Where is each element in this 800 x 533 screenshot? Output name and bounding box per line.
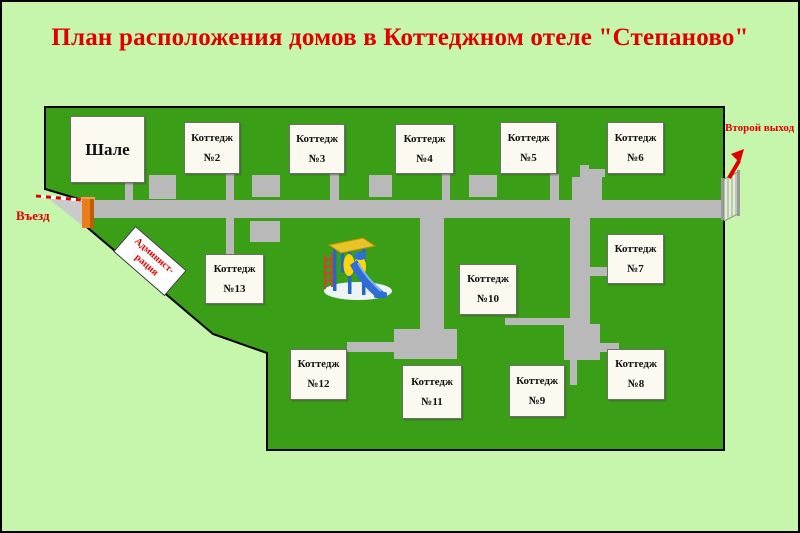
building-label: Коттедж bbox=[467, 274, 509, 285]
road-segment bbox=[347, 342, 394, 352]
building-label: Коттедж bbox=[298, 359, 340, 370]
building-cottage-2: Коттедж№2 bbox=[184, 122, 240, 174]
building-cottage-5: Коттедж№5 bbox=[500, 122, 557, 174]
building-number: №13 bbox=[223, 284, 245, 295]
building-number: №4 bbox=[416, 154, 433, 165]
road-segment bbox=[570, 360, 577, 385]
building-cottage-6: Коттедж№6 bbox=[607, 122, 664, 174]
building-number: №9 bbox=[529, 396, 546, 407]
building-number: №11 bbox=[421, 397, 442, 408]
building-label: Коттедж bbox=[296, 134, 338, 145]
road-segment bbox=[420, 218, 444, 330]
building-label: Коттедж bbox=[615, 133, 657, 144]
building-number: №3 bbox=[309, 154, 326, 165]
road-segment bbox=[149, 175, 176, 199]
road-segment bbox=[572, 177, 602, 200]
building-number: №2 bbox=[204, 153, 221, 164]
map-graphics bbox=[2, 2, 800, 533]
road-segment bbox=[564, 324, 600, 360]
road-segment bbox=[469, 175, 497, 197]
road-segment bbox=[252, 175, 280, 197]
entrance-apron bbox=[48, 198, 84, 227]
road-segment bbox=[570, 218, 590, 325]
road-segment bbox=[580, 165, 589, 179]
building-number: №12 bbox=[307, 379, 329, 390]
building-cottage-3: Коттедж№3 bbox=[289, 124, 345, 174]
road-segment bbox=[590, 267, 607, 276]
second-exit-label: Второй выход bbox=[725, 122, 794, 134]
road-segment bbox=[550, 174, 559, 202]
road-segment bbox=[226, 218, 234, 254]
road-segment bbox=[589, 169, 605, 177]
building-label: Коттедж bbox=[615, 359, 657, 370]
road-segment bbox=[442, 174, 450, 202]
building-cottage-4: Коттедж№4 bbox=[395, 124, 454, 174]
entrance-label: Въезд bbox=[16, 208, 50, 224]
building-label: Коттедж bbox=[615, 244, 657, 255]
building-label: Коттедж bbox=[516, 376, 558, 387]
main-road bbox=[82, 200, 724, 218]
plan-canvas: План расположения домов в Коттеджном оте… bbox=[0, 0, 800, 533]
building-number: №8 bbox=[628, 379, 645, 390]
building-cottage-10: Коттедж№10 bbox=[459, 264, 517, 315]
road-segment bbox=[226, 174, 234, 202]
site-map: Въезд Второй выход Админист- рация ШалеК… bbox=[2, 2, 800, 533]
building-cottage-12: Коттедж№12 bbox=[290, 349, 347, 400]
building-cottage-7: Коттедж№7 bbox=[607, 234, 664, 284]
road-segment bbox=[330, 174, 339, 202]
building-number: №7 bbox=[627, 264, 644, 275]
building-cottage-11: Коттедж№11 bbox=[402, 365, 462, 419]
building-cottage-13: Коттедж№13 bbox=[205, 254, 264, 304]
building-number: №10 bbox=[477, 294, 499, 305]
building-label: Коттедж bbox=[508, 133, 550, 144]
road-segment bbox=[250, 221, 280, 242]
road-segment bbox=[125, 182, 133, 202]
building-label: Коттедж bbox=[411, 377, 453, 388]
building-chalet: Шале bbox=[70, 116, 145, 183]
road-segment bbox=[394, 329, 457, 359]
building-label: Коттедж bbox=[191, 133, 233, 144]
building-number: №6 bbox=[627, 153, 644, 164]
building-label: Коттедж bbox=[404, 134, 446, 145]
road-segment bbox=[369, 175, 392, 197]
building-cottage-8: Коттедж№8 bbox=[607, 349, 665, 400]
building-number: №5 bbox=[520, 153, 537, 164]
building-cottage-9: Коттедж№9 bbox=[509, 365, 565, 417]
road-segment bbox=[505, 318, 570, 325]
building-label: Коттедж bbox=[214, 264, 256, 275]
